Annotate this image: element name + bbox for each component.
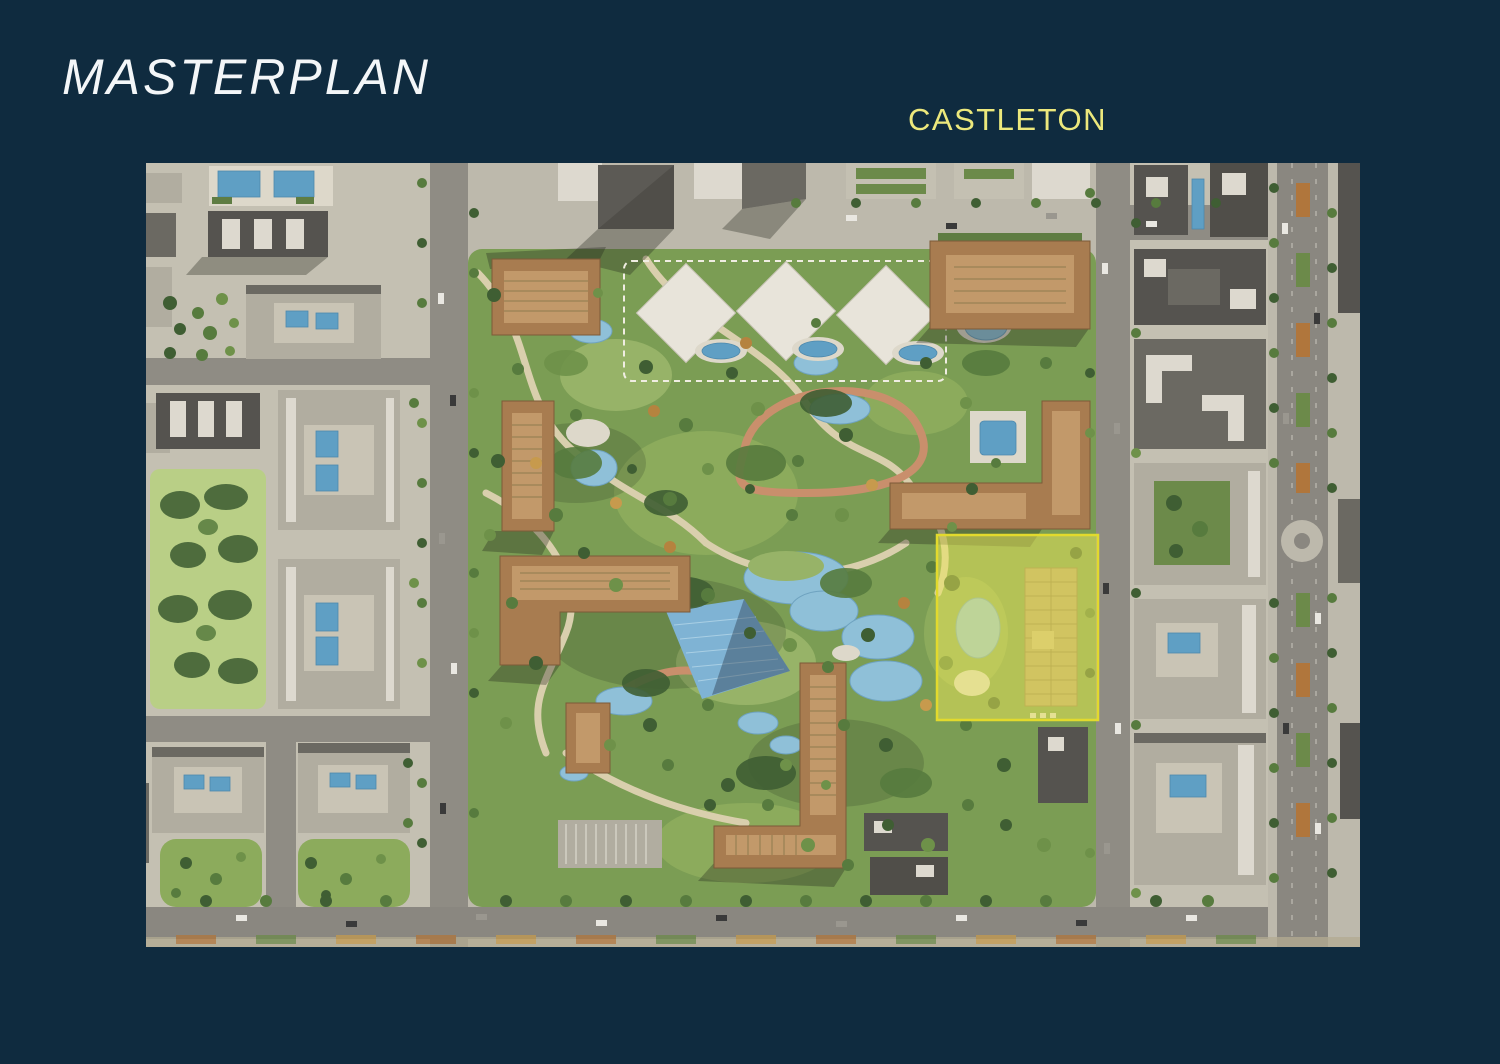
maze-garden — [150, 469, 266, 709]
castleton-plot-highlight — [937, 535, 1098, 720]
slide-background: MASTERPLAN CASTLETON — [0, 0, 1500, 1064]
avenue — [1268, 163, 1336, 947]
masterplan-aerial-map — [146, 163, 1360, 947]
masterplan-svg — [146, 163, 1360, 947]
site-label-castleton: CASTLETON — [908, 104, 1107, 135]
east-city-blocks — [1134, 163, 1268, 885]
page-title: MASTERPLAN — [62, 52, 431, 102]
parking-lot — [558, 820, 662, 868]
right-edge-blocks — [1336, 163, 1360, 947]
